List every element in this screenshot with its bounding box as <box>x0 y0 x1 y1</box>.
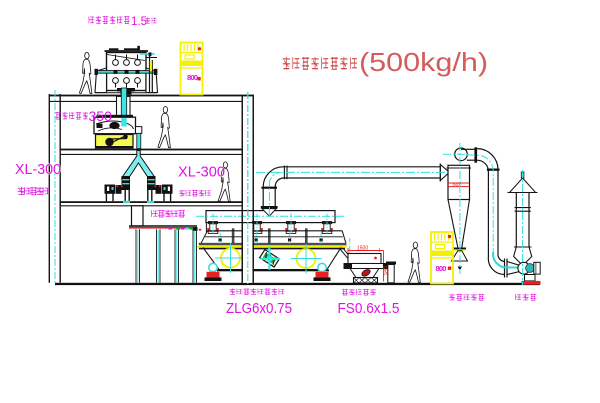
svg-text:1500: 1500 <box>357 246 368 252</box>
svg-text:ZLG6x0.75: ZLG6x0.75 <box>226 300 292 317</box>
svg-text:800: 800 <box>436 264 447 273</box>
svg-text:XL-300: XL-300 <box>15 161 61 178</box>
svg-text:350: 350 <box>89 108 113 124</box>
svg-text:(500kg/h): (500kg/h) <box>359 47 488 77</box>
svg-text:545: 545 <box>383 266 389 275</box>
svg-text:800: 800 <box>187 73 198 82</box>
svg-text:FS0.6x1.5: FS0.6x1.5 <box>338 300 400 317</box>
svg-text:XL-300: XL-300 <box>178 164 225 181</box>
svg-text:1.5: 1.5 <box>131 16 147 28</box>
